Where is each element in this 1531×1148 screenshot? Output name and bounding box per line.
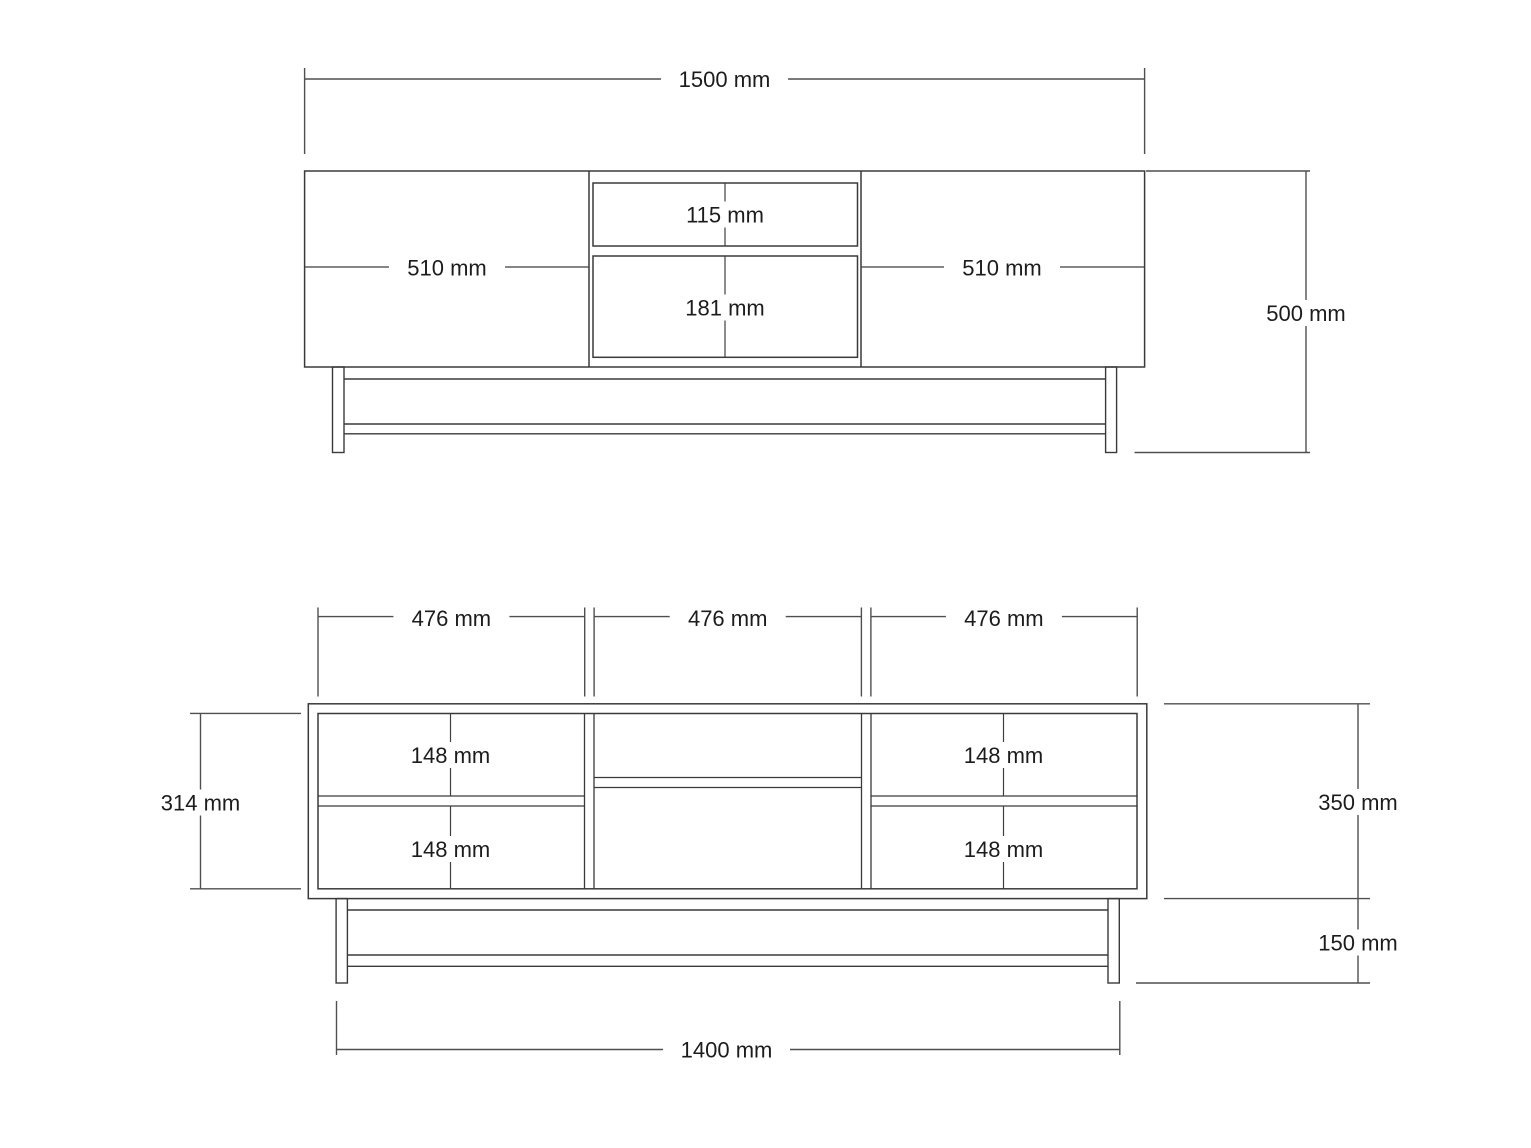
svg-text:500 mm: 500 mm (1266, 301, 1345, 326)
svg-text:314 mm: 314 mm (161, 791, 240, 816)
svg-text:476 mm: 476 mm (412, 606, 491, 631)
svg-text:148 mm: 148 mm (411, 743, 490, 768)
svg-text:148 mm: 148 mm (411, 837, 490, 862)
svg-text:476 mm: 476 mm (964, 606, 1043, 631)
svg-text:476 mm: 476 mm (688, 606, 767, 631)
svg-text:148 mm: 148 mm (964, 743, 1043, 768)
svg-text:350 mm: 350 mm (1318, 790, 1397, 815)
svg-text:181 mm: 181 mm (685, 296, 764, 321)
svg-text:510 mm: 510 mm (962, 255, 1041, 280)
svg-text:150 mm: 150 mm (1318, 931, 1397, 956)
svg-text:148 mm: 148 mm (964, 837, 1043, 862)
svg-text:510 mm: 510 mm (407, 255, 486, 280)
svg-text:1500 mm: 1500 mm (679, 67, 771, 92)
svg-text:1400 mm: 1400 mm (681, 1038, 773, 1063)
svg-text:115 mm: 115 mm (686, 203, 764, 228)
